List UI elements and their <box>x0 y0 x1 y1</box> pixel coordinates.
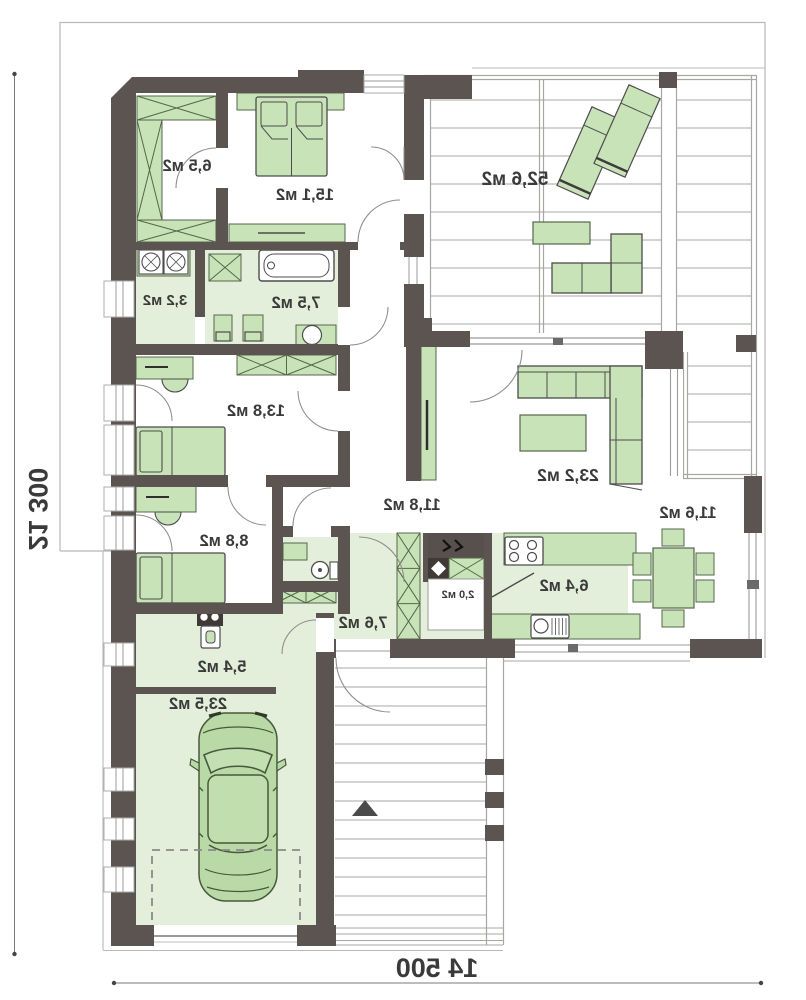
svg-text:14 500: 14 500 <box>396 953 479 983</box>
svg-text:6,5 м2: 6,5 м2 <box>163 157 212 175</box>
svg-text:15,1 м2: 15,1 м2 <box>276 186 334 204</box>
svg-text:11,8 м2: 11,8 м2 <box>383 496 440 514</box>
svg-text:2,0 м2: 2,0 м2 <box>442 589 475 601</box>
svg-text:21 300: 21 300 <box>23 468 53 551</box>
svg-text:7,5 м2: 7,5 м2 <box>272 294 321 312</box>
svg-text:23,5 м2: 23,5 м2 <box>169 695 227 713</box>
svg-text:8,8 м2: 8,8 м2 <box>200 532 249 550</box>
svg-text:13,8 м2: 13,8 м2 <box>227 402 285 420</box>
svg-text:6,4 м2: 6,4 м2 <box>540 577 589 595</box>
svg-text:23,2 м2: 23,2 м2 <box>537 465 599 485</box>
svg-text:52,6 м2: 52,6 м2 <box>482 169 549 190</box>
svg-text:7,6 м2: 7,6 м2 <box>339 614 388 632</box>
svg-text:3,2 м2: 3,2 м2 <box>143 292 187 309</box>
svg-text:11,6 м2: 11,6 м2 <box>659 504 716 522</box>
svg-text:5,4 м2: 5,4 м2 <box>198 658 247 676</box>
